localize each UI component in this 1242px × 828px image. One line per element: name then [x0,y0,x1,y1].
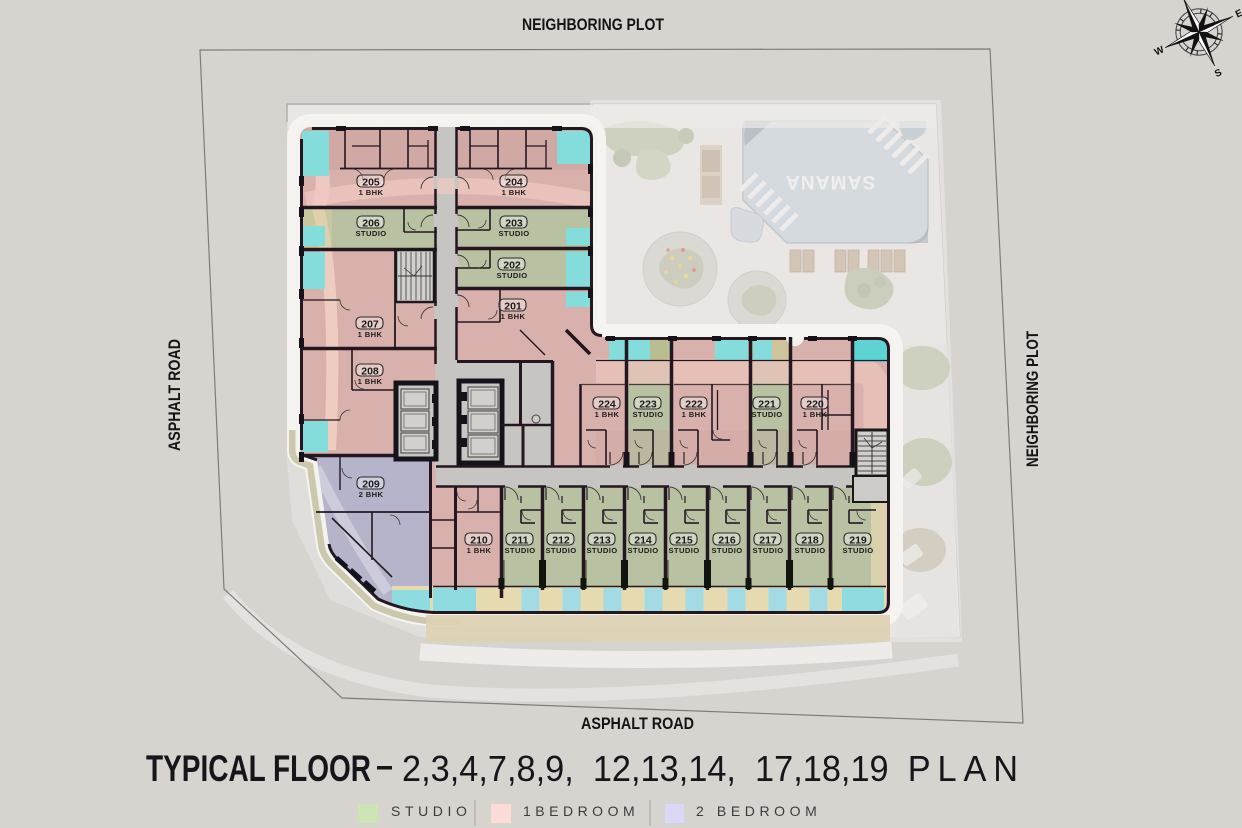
svg-text:222: 222 [685,399,703,411]
svg-text:205: 205 [362,177,380,189]
svg-text:211: 211 [512,535,529,547]
svg-text:STUDIO: STUDIO [586,546,617,555]
svg-text:204: 204 [505,177,523,189]
svg-text:217: 217 [759,535,777,547]
svg-text:219: 219 [849,535,867,547]
svg-text:208: 208 [361,366,379,378]
svg-text:1 BHK: 1 BHK [803,410,828,419]
svg-text:1 BHK: 1 BHK [467,546,492,555]
svg-text:223: 223 [639,399,657,411]
svg-text:STUDIO: STUDIO [668,546,699,555]
svg-text:1BEDROOM: 1BEDROOM [523,803,639,819]
svg-text:214: 214 [634,535,652,547]
svg-text:STUDIO: STUDIO [794,546,825,555]
svg-text:ASPHALT ROAD: ASPHALT ROAD [581,714,694,733]
svg-text:1 BHK: 1 BHK [595,410,620,419]
svg-text:207: 207 [361,319,379,331]
svg-text:1 BHK: 1 BHK [502,188,527,197]
svg-text:STUDIO: STUDIO [504,546,535,555]
svg-text:STUDIO: STUDIO [632,410,663,419]
svg-text:1 BHK: 1 BHK [358,330,383,339]
svg-text:STUDIO: STUDIO [498,229,529,238]
svg-text:220: 220 [806,399,824,411]
svg-text:1 BHK: 1 BHK [359,188,384,197]
svg-text:NEIGHBORING PLOT: NEIGHBORING PLOT [522,15,664,34]
svg-text:STUDIO: STUDIO [751,410,782,419]
svg-text:STUDIO: STUDIO [752,546,783,555]
svg-text:215: 215 [675,535,693,547]
svg-text:2,3,4,7,8,9, 12,13,14, 17,18: 2,3,4,7,8,9, 12,13,14, 17,18,19 P L A N [402,748,1018,789]
svg-text:202: 202 [503,260,521,272]
svg-text:STUDIO: STUDIO [842,546,873,555]
svg-text:NEIGHBORING PLOT: NEIGHBORING PLOT [1023,331,1042,467]
svg-text:210: 210 [470,535,488,547]
svg-text:206: 206 [362,218,380,230]
svg-text:213: 213 [593,535,611,547]
svg-text:224: 224 [598,399,616,411]
svg-text:TYPICAL FLOOR: TYPICAL FLOOR [146,748,371,789]
svg-text:1 BHK: 1 BHK [501,312,526,321]
svg-text:ASPHALT ROAD: ASPHALT ROAD [165,339,184,451]
svg-text:212: 212 [552,535,570,547]
svg-text:STUDIO: STUDIO [391,803,472,819]
svg-text:STUDIO: STUDIO [355,229,386,238]
svg-text:203: 203 [505,218,523,230]
svg-text:216: 216 [718,535,736,547]
svg-text:STUDIO: STUDIO [627,546,658,555]
svg-text:1 BHK: 1 BHK [358,377,383,386]
svg-text:2 BHK: 2 BHK [359,490,384,499]
svg-text:209: 209 [362,479,380,491]
svg-text:STUDIO: STUDIO [496,271,527,280]
svg-text:218: 218 [801,535,819,547]
svg-text:STUDIO: STUDIO [711,546,742,555]
svg-text:201: 201 [504,301,522,313]
svg-text:221: 221 [758,399,776,411]
svg-text:2 BEDROOM: 2 BEDROOM [696,803,821,819]
svg-text:STUDIO: STUDIO [545,546,576,555]
svg-text:1 BHK: 1 BHK [682,410,707,419]
